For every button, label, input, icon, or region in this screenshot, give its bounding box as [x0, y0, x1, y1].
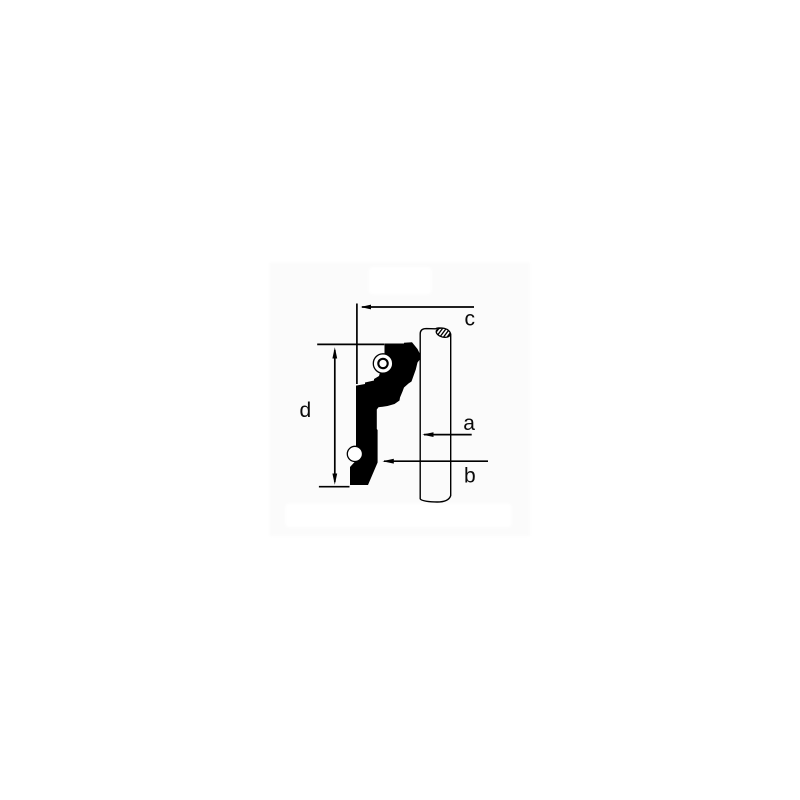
svg-text:b: b — [464, 465, 476, 488]
svg-text:c: c — [465, 307, 476, 330]
svg-text:d: d — [300, 399, 312, 422]
svg-text:a: a — [463, 412, 475, 435]
